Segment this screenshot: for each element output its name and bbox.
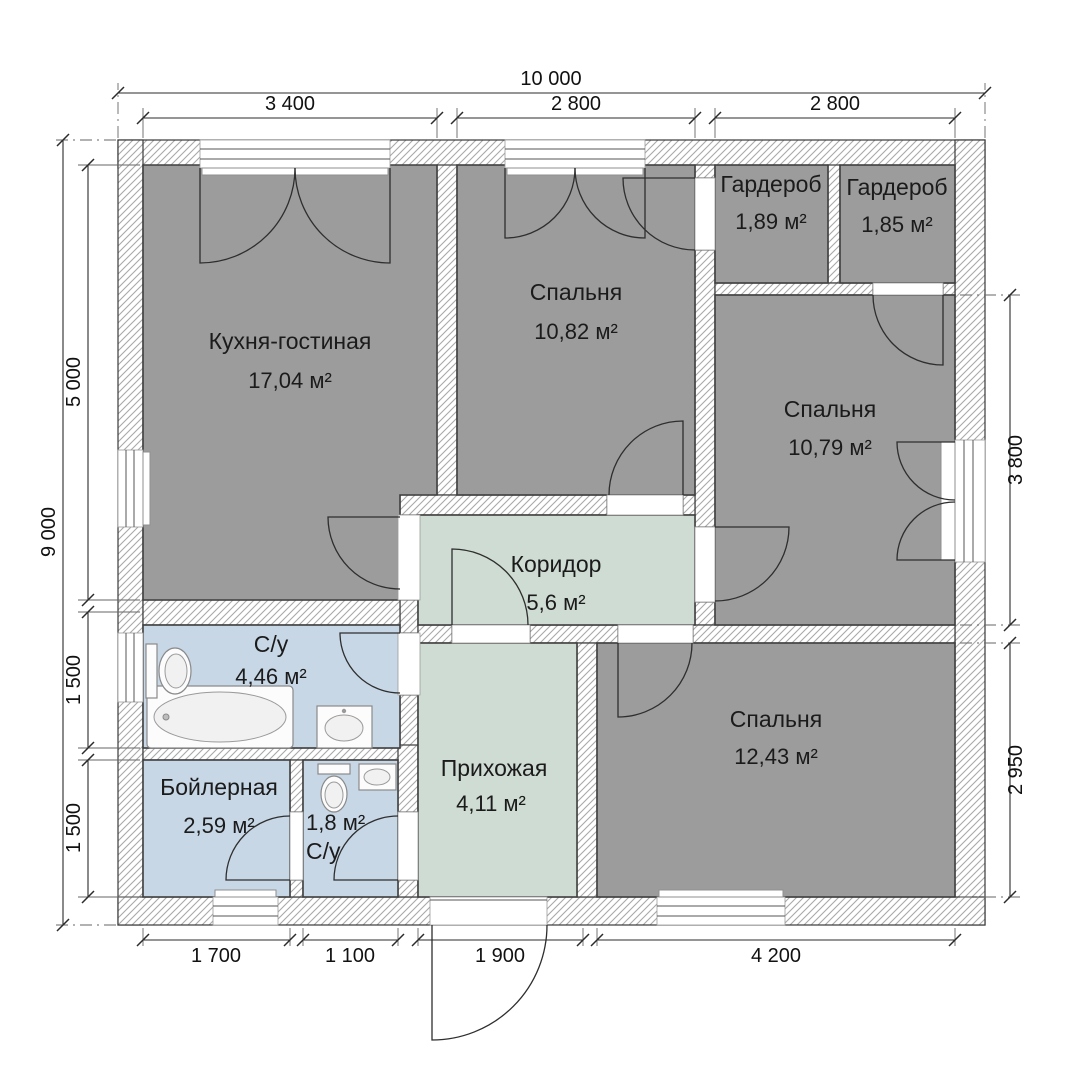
dim-right-seg-2: 2 950	[1005, 745, 1027, 795]
wall-segment	[437, 165, 457, 495]
dim-top-seg-3: 2 800	[810, 93, 860, 115]
door-opening	[873, 283, 943, 295]
label-corridor-name: Коридор	[511, 551, 602, 577]
label-wardrobe-right-area: 1,85 м²	[861, 212, 932, 237]
wall-segment	[418, 625, 452, 643]
door-opening	[695, 178, 715, 250]
dim-left-seg-3: 1 500	[63, 803, 85, 853]
floor-plan: 10 000 3 400 2 800 2 800 9 000 5 000 1 5…	[0, 0, 1080, 1080]
wall-segment	[530, 625, 618, 643]
window-opening	[657, 897, 785, 925]
bathtub-drain-icon	[163, 714, 169, 720]
wall-segment	[695, 250, 715, 527]
toilet-tank-icon	[318, 764, 350, 774]
label-bedroom-bottom-name: Спальня	[730, 706, 822, 732]
label-bedroom-bottom-area: 12,43 м²	[734, 744, 818, 769]
wall-segment	[695, 165, 715, 178]
wall-segment	[683, 495, 695, 515]
dim-bottom-seg-2: 1 100	[325, 945, 375, 967]
wall-segment	[577, 643, 597, 897]
door-opening	[290, 812, 303, 880]
wall-segment	[715, 283, 873, 295]
dim-left-overall: 9 000	[38, 507, 60, 557]
dim-top-seg-2: 2 800	[551, 93, 601, 115]
toilet-tank-icon	[146, 644, 157, 698]
label-bedroom-top-area: 10,82 м²	[534, 319, 618, 344]
dim-top-seg-1: 3 400	[265, 93, 315, 115]
wall-segment	[290, 880, 303, 897]
label-bedroom-right-area: 10,79 м²	[788, 435, 872, 460]
wall-segment	[695, 602, 715, 625]
label-bedroom-right-name: Спальня	[784, 396, 876, 422]
sink-basin-icon	[364, 769, 390, 785]
label-hallway-name: Прихожая	[441, 755, 548, 781]
room-bedroom-bottom	[597, 643, 955, 897]
door-opening	[695, 527, 715, 602]
label-wardrobe-left-area: 1,89 м²	[735, 209, 806, 234]
label-bedroom-top-name: Спальня	[530, 279, 622, 305]
window-opening	[118, 450, 143, 527]
door-opening	[398, 633, 420, 695]
door-opening	[607, 495, 683, 515]
label-wardrobe-left-name: Гардероб	[720, 171, 821, 197]
dim-left-seg-1: 5 000	[63, 357, 85, 407]
wall-segment	[143, 748, 418, 760]
wall-segment	[400, 600, 418, 633]
wall-segment	[398, 880, 418, 897]
wall-segment	[400, 695, 418, 748]
label-kitchen-living-area: 17,04 м²	[248, 368, 332, 393]
window-opening	[955, 440, 985, 562]
window-sill	[659, 890, 783, 897]
toilet-seat-icon	[165, 654, 187, 688]
wall-segment	[398, 745, 418, 812]
label-corridor-area: 5,6 м²	[526, 590, 585, 615]
wall-outer-left	[118, 140, 143, 925]
label-boiler-area: 2,59 м²	[183, 813, 254, 838]
sink-basin-icon	[325, 715, 363, 741]
label-hallway-area: 4,11 м²	[456, 791, 526, 816]
door-opening	[398, 812, 418, 880]
dim-bottom-seg-3: 1 900	[475, 945, 525, 967]
wall-segment	[143, 600, 400, 625]
window-opening	[213, 897, 278, 925]
wall-segment	[943, 283, 955, 295]
door-opening	[452, 625, 530, 643]
bathtub-basin-icon	[154, 692, 286, 742]
window-opening	[505, 140, 645, 168]
dim-bottom-seg-1: 1 700	[191, 945, 241, 967]
label-wardrobe-right-name: Гардероб	[846, 174, 947, 200]
passage-opening	[398, 515, 420, 600]
room-bedroom-right	[715, 295, 955, 625]
window-sill	[143, 452, 150, 525]
wall-segment	[693, 625, 955, 643]
floor-plan-svg: 10 000 3 400 2 800 2 800 9 000 5 000 1 5…	[0, 0, 1080, 1080]
sink-tap-icon	[342, 709, 346, 713]
label-kitchen-living-name: Кухня-гостиная	[209, 328, 372, 354]
toilet-seat-icon	[325, 782, 343, 808]
label-boiler-name: Бойлерная	[160, 774, 278, 800]
dim-bottom-seg-4: 4 200	[751, 945, 801, 967]
entrance-opening	[430, 897, 547, 925]
wall-segment	[400, 495, 607, 515]
door-opening	[618, 625, 693, 643]
window-opening	[200, 140, 390, 168]
window-sill	[941, 442, 955, 560]
label-bathroom-name: С/у	[254, 631, 289, 657]
window-sill	[215, 890, 276, 897]
wall-segment	[828, 165, 840, 283]
entrance-door	[432, 925, 547, 1040]
label-bathroom-area: 4,46 м²	[235, 664, 306, 689]
dim-right-seg-1: 3 800	[1005, 435, 1027, 485]
dim-top-overall: 10 000	[520, 68, 581, 90]
dim-left-seg-2: 1 500	[63, 655, 85, 705]
window-opening	[118, 633, 143, 702]
label-wc-area: 1,8 м²	[306, 810, 365, 835]
wall-segment	[290, 760, 303, 812]
label-wc-name: С/у	[306, 838, 341, 864]
